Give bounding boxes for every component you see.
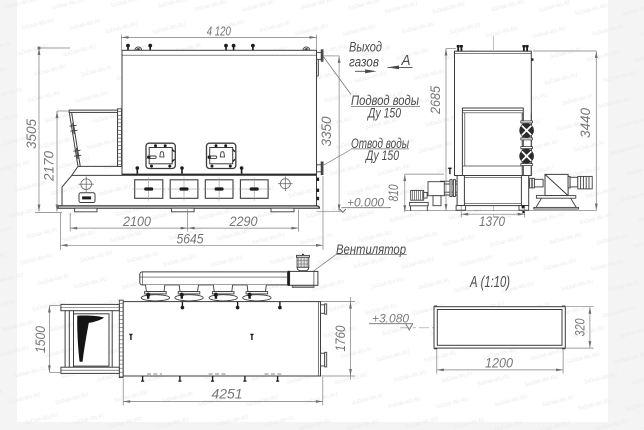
svg-text:4 120: 4 120 — [207, 24, 231, 38]
svg-text:810: 810 — [385, 184, 401, 201]
svg-text:1370: 1370 — [479, 213, 505, 229]
svg-text:А: А — [401, 53, 411, 69]
svg-text:Ду 150: Ду 150 — [364, 148, 399, 163]
svg-text:А (1:10): А (1:10) — [469, 274, 510, 291]
svg-text:+0.000: +0.000 — [347, 195, 384, 209]
svg-text:5645: 5645 — [177, 231, 204, 247]
svg-text:3350: 3350 — [318, 116, 334, 146]
svg-text:2290: 2290 — [229, 213, 258, 229]
svg-text:4251: 4251 — [212, 386, 243, 402]
svg-text:3505: 3505 — [23, 119, 39, 149]
svg-text:1500: 1500 — [32, 326, 48, 353]
svg-text:Выход: Выход — [349, 40, 382, 55]
svg-text:2100: 2100 — [122, 213, 151, 229]
svg-text:320: 320 — [572, 318, 588, 336]
svg-text:+3.080: +3.080 — [372, 311, 409, 325]
svg-text:3440: 3440 — [577, 108, 593, 138]
svg-text:1200: 1200 — [485, 354, 513, 370]
svg-text:2685: 2685 — [427, 86, 443, 115]
svg-text:Ду 150: Ду 150 — [366, 106, 401, 121]
svg-text:газов: газов — [349, 55, 379, 70]
svg-text:2170: 2170 — [41, 151, 57, 182]
svg-text:1760: 1760 — [332, 325, 348, 351]
